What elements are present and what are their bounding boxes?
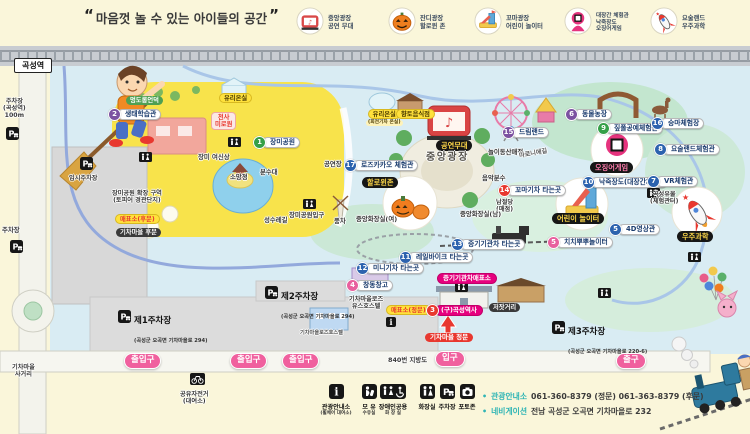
parking-lot-label: P제3주차장(곡성군 오곡면 기차마을로 220-6): [552, 319, 647, 357]
map-label-text: 기차마을 정문: [425, 333, 473, 342]
bike-rental-icon: [190, 373, 205, 385]
map-label-text: 장미공원입구: [289, 212, 324, 219]
poi-number-badge: 17: [344, 159, 357, 172]
squid-game-icon: [564, 7, 592, 39]
poi-number-badge: 14: [498, 184, 511, 197]
map-label-text: 공연장: [324, 161, 342, 168]
map-label-text: 유리온실: [219, 93, 252, 103]
map-label-text: 기차마을 사거리: [12, 364, 35, 378]
map-label-text: 곡성유물 (체험관터): [650, 191, 678, 205]
poi-12-label: 12미니기차 타는곳: [356, 262, 424, 275]
map-label-text: 풍차: [334, 218, 346, 225]
quote-text: 마음껏 놀 수 있는 아이들의 공간: [96, 8, 267, 27]
contact-info-row: •네비게이션전남 곡성군 오곡면 기차마을로 232: [482, 406, 704, 417]
map-label-text: (구)곡성역사: [435, 305, 483, 316]
poi-6-label: 6동물농장: [565, 108, 612, 121]
contact-label: 관광안내소: [491, 391, 527, 402]
map-label: 매표소(정문): [386, 305, 431, 315]
poi-number-badge: 9: [597, 122, 610, 135]
map-label: 곡성유물 (체험관터): [650, 191, 678, 205]
tourist-info-icon: i: [386, 317, 396, 327]
map-label-text: 동물농장: [574, 109, 612, 121]
svg-text:♪: ♪: [308, 18, 312, 26]
poi-16-label: 16승마체험장: [651, 117, 704, 130]
legend-item-label: 중앙광장 공연 무대: [328, 15, 353, 31]
map-label-text: 출입구: [124, 353, 161, 369]
map-label: 기차마을로즈호스텔: [300, 331, 343, 337]
map-label: 출입구: [230, 353, 267, 369]
map-label: 기차마을 후문: [116, 228, 161, 237]
quote-open-mark: “: [84, 8, 94, 23]
poi-number-badge: 13: [451, 238, 464, 251]
map-label-text: 미니기차 타는곳: [365, 263, 424, 275]
map-label: 어린이 놀이터: [552, 213, 604, 224]
map-label-text: 저잣거리: [489, 303, 520, 312]
theme-park-map: ♪ ★ “마음껏 놀 수 있는 아이들의 공간” ♪중앙광장 공연 무대잔디광장…: [0, 0, 750, 434]
map-label: 장미 여신상: [198, 154, 230, 161]
legend-item: 대장간 체험관 낙죽장도 오징어게임: [564, 7, 629, 39]
map-label: 매표소(후문): [115, 214, 160, 224]
map-label-text: 중앙화장실(여): [356, 216, 397, 223]
map-label-text: 오징어게임: [590, 162, 633, 173]
svg-text:P: P: [9, 130, 15, 139]
rocket-icon: ★: [650, 7, 678, 39]
map-label: 성수레길: [264, 217, 288, 224]
poi-13-label: 13증기기관차 타는곳: [451, 238, 525, 251]
page-title: “마음껏 놀 수 있는 아이들의 공간”: [84, 8, 279, 27]
poi-number-badge: 10: [582, 176, 595, 189]
map-label-text: 드림랜드: [511, 127, 549, 139]
map-label: 중앙화장실(여): [356, 216, 397, 223]
map-label: 공유자전거 (대여소): [180, 391, 208, 405]
poi-15-label: 15드림랜드: [502, 126, 549, 139]
parking-icon: P: [552, 319, 565, 338]
map-label-text: 840번 지방도: [388, 357, 427, 364]
legend-item: 꼬마광장 어린이 놀이터: [474, 7, 543, 39]
map-label: 출입구: [124, 353, 161, 369]
parking-icon: P: [118, 308, 131, 327]
map-label-text: 소망정: [230, 174, 248, 181]
poi-number-badge: 5: [609, 223, 622, 236]
svg-text:i: i: [389, 317, 392, 327]
map-label-text: 장미공원 확장 구역 (토피어 경관단지): [112, 190, 162, 204]
map-label: 할로윈존: [362, 177, 398, 188]
road-left: [19, 66, 46, 434]
poi-number-badge: 8: [654, 143, 667, 156]
poi-number-badge: 16: [651, 117, 664, 130]
bullet-icon: •: [482, 392, 487, 401]
map-label: 공연무대: [436, 140, 472, 151]
map-label: 840번 지방도: [388, 357, 427, 364]
legend-item: ♪중앙광장 공연 무대: [296, 7, 353, 39]
legend-item: 잔디광장 할로윈 존: [388, 7, 445, 39]
contact-info-row: •관광안내소061-360-8379 (정문) 061-363-8379 (후문…: [482, 391, 704, 402]
map-label: 분수대: [260, 169, 278, 176]
restroom-icon: [303, 199, 316, 209]
map-label-subtext: (회전기차 온실): [366, 120, 403, 126]
map-label: 오징어게임: [590, 162, 633, 173]
legend-item-label: 요술랜드 우주과학: [682, 15, 705, 31]
poi-7-label: 7VR체험관: [647, 175, 698, 188]
parking-icon: P: [6, 127, 19, 140]
map-label: 중앙화장실(남): [460, 211, 501, 218]
map-label-text: 출입구: [282, 353, 319, 369]
map-label-text: 장미공원: [262, 137, 300, 149]
map-label-text: 매표소(후문): [115, 214, 160, 224]
map-label-text: 향토음식점: [396, 109, 435, 119]
map-label-text: 중앙화장실(남): [460, 211, 501, 218]
map-label-text: 증기기관차매표소: [437, 273, 497, 284]
legend-item-label: 잔디광장 할로윈 존: [420, 15, 445, 31]
map-label-text: 어린이 놀이터: [552, 213, 604, 224]
map-label-text: 주차장: [2, 227, 20, 234]
contact-label: 네비게이션: [491, 406, 527, 417]
map-label: 기차마을 정문: [425, 333, 473, 342]
map-label-text: VR체험관: [656, 176, 698, 188]
poi-number-badge: 12: [356, 262, 369, 275]
svg-text:P: P: [121, 313, 127, 322]
legend-item-label: 꼬마광장 어린이 놀이터: [506, 15, 543, 31]
bullet-icon: •: [482, 407, 487, 416]
map-label: 증기기관차매표소: [437, 273, 497, 284]
map-label: 임시주차장: [69, 175, 97, 182]
map-label: 마로니에길: [519, 150, 547, 157]
map-label: 공연장: [324, 161, 342, 168]
parking-icon: P: [10, 240, 23, 253]
poi-number-badge: 2: [108, 108, 121, 121]
poi-number-badge: 6: [565, 108, 578, 121]
station-label: 곡성역: [14, 58, 52, 73]
playground-icon: [474, 7, 502, 39]
contact-value: 061-360-8379 (정문) 061-363-8379 (후문): [531, 391, 704, 402]
parking-address: (곡성군 오곡면 기차마을로 294): [134, 338, 208, 344]
map-label: 멍도롱언덕: [126, 96, 163, 105]
map-label: 향토음식점: [396, 109, 435, 119]
map-label-text: 요술랜드체험관: [663, 144, 720, 156]
map-label-text: 치치뿌뿌놀이터: [556, 237, 613, 249]
map-label: 소망정: [230, 174, 248, 181]
map-label-text: 공유자전거 (대여소): [180, 391, 208, 405]
info-icon: i: [329, 384, 344, 403]
parking-address: (곡성군 오곡면 기차마을로 220-6): [568, 349, 647, 355]
map-label-text: 증기기관차 타는곳: [460, 239, 525, 251]
poi-number-badge: 15: [502, 126, 515, 139]
map-label-text: 음악분수: [482, 175, 506, 182]
map-label-text: 로즈카카오 체험관: [353, 160, 418, 172]
parking-icon: P: [265, 284, 278, 303]
map-label-text: 승마체험장: [660, 118, 704, 130]
footer-legend-label: 포토존: [458, 404, 475, 411]
svg-text:★: ★: [656, 11, 660, 17]
map-label-text: 입구: [435, 351, 465, 367]
map-label-text: 임시주차장: [69, 175, 97, 182]
map-label: 음악분수: [482, 175, 506, 182]
parking-title: 제1주차장: [134, 316, 171, 326]
parking-title: 제3주차장: [568, 327, 605, 337]
map-label: 유리온실: [219, 93, 252, 103]
contact-value: 전남 곡성군 오곡면 기차마을로 232: [531, 406, 651, 417]
stage-icon: ♪: [296, 7, 324, 39]
map-label: 장미공원입구: [289, 212, 324, 219]
map-label: 천사 미로원: [211, 112, 236, 130]
poi-5-label: 5치치뿌뿌놀이터: [547, 236, 613, 249]
pumpkin-icon: [388, 7, 416, 39]
map-label-text: 창동창고: [355, 280, 393, 292]
map-label-text: 중앙광장: [426, 152, 469, 164]
map-label-text: 멍도롱언덕: [126, 96, 163, 105]
map-label-text: 꼬마기차 타는곳: [507, 185, 566, 197]
map-label-text: 공연무대: [436, 140, 472, 151]
parking-address: (곡성군 오곡면 기차마을로 294): [281, 314, 355, 320]
map-label-text: 기차마을로즈호스텔: [300, 331, 343, 337]
parking-lot-label: P제2주차장(곡성군 오곡면 기차마을로 294): [265, 284, 355, 322]
map-label-text: 장미 여신상: [198, 154, 230, 161]
poi-2-label: 2생태학습관: [108, 108, 161, 121]
map-label-text: 4D영상관: [618, 224, 660, 236]
map-label-text: 분수대: [260, 169, 278, 176]
footer-info: •관광안내소061-360-8379 (정문) 061-363-8379 (후문…: [482, 391, 704, 420]
ecology-center-building: [148, 118, 206, 154]
map-label: 주차장 (곡성역) 100m: [3, 98, 26, 119]
map-label-text: 우주과학: [677, 231, 713, 242]
railway-band: [0, 46, 750, 66]
map-label-text: 주차장 (곡성역) 100m: [3, 98, 26, 119]
poi-3-label: 3(구)곡성역사: [426, 304, 483, 317]
map-label: 저잣거리: [489, 303, 520, 312]
poi-17-label: 17로즈카카오 체험관: [344, 159, 418, 172]
svg-text:i: i: [334, 386, 338, 399]
rocket-circle: ★: [672, 187, 722, 237]
map-label-text: 매표소(정문): [386, 305, 431, 315]
parking-icon: P: [80, 157, 93, 170]
photozone-icon: [460, 384, 475, 403]
poi-1-label: 1장미공원: [253, 136, 300, 149]
poi-number-badge: 3: [426, 304, 439, 317]
svg-text:P: P: [555, 324, 561, 333]
map-label-text: 할로윈존: [362, 177, 398, 188]
map-label-text: 성수레길: [264, 217, 288, 224]
map-label: 출입구: [282, 353, 319, 369]
map-label-text: 기차마을 후문: [116, 228, 161, 237]
map-label: 우주과학: [677, 231, 713, 242]
roundabout: [12, 290, 54, 332]
map-label: 주차장: [2, 227, 20, 234]
poi-8-label: 8요술랜드체험관: [654, 143, 720, 156]
svg-text:★: ★: [682, 193, 689, 202]
svg-text:P: P: [83, 160, 89, 169]
svg-text:P: P: [268, 289, 274, 298]
poi-number-badge: 1: [253, 136, 266, 149]
map-label-text: 천사 미로원: [211, 112, 236, 130]
quote-close-mark: ”: [269, 8, 279, 23]
legend-item: ★요술랜드 우주과학: [650, 7, 705, 39]
map-label: 장미공원 확장 구역 (토피어 경관단지): [112, 190, 162, 204]
svg-text:P: P: [13, 243, 19, 252]
map-label: 중앙광장: [426, 152, 469, 164]
poi-number-badge: 7: [647, 175, 660, 188]
accessible-restroom-icon: [380, 384, 406, 403]
restroom-icon: [139, 152, 152, 162]
map-label: 기차마을 사거리: [12, 364, 35, 378]
restroom-icon: [688, 252, 701, 262]
map-label-text: 생태학습관: [117, 109, 161, 121]
map-label: 풍차: [334, 218, 346, 225]
restroom-icon: [598, 288, 611, 298]
poi-14-label: 14꼬마기차 타는곳: [498, 184, 566, 197]
map-label-text: 출입구: [230, 353, 267, 369]
legend-item-label: 대장간 체험관 낙죽장도 오징어게임: [596, 13, 629, 34]
restroom-icon: [228, 137, 241, 147]
parking-lot-label: P제1주차장(곡성군 오곡면 기차마을로 294): [118, 308, 208, 346]
poi-5-label: 54D영상관: [609, 223, 660, 236]
map-label: 입구: [435, 351, 465, 367]
parking-title: 제2주차장: [281, 292, 318, 302]
svg-text:♪: ♪: [445, 116, 453, 131]
footer-legend-sublabel: 화 장 실: [385, 411, 401, 417]
poi-number-badge: 5: [547, 236, 560, 249]
